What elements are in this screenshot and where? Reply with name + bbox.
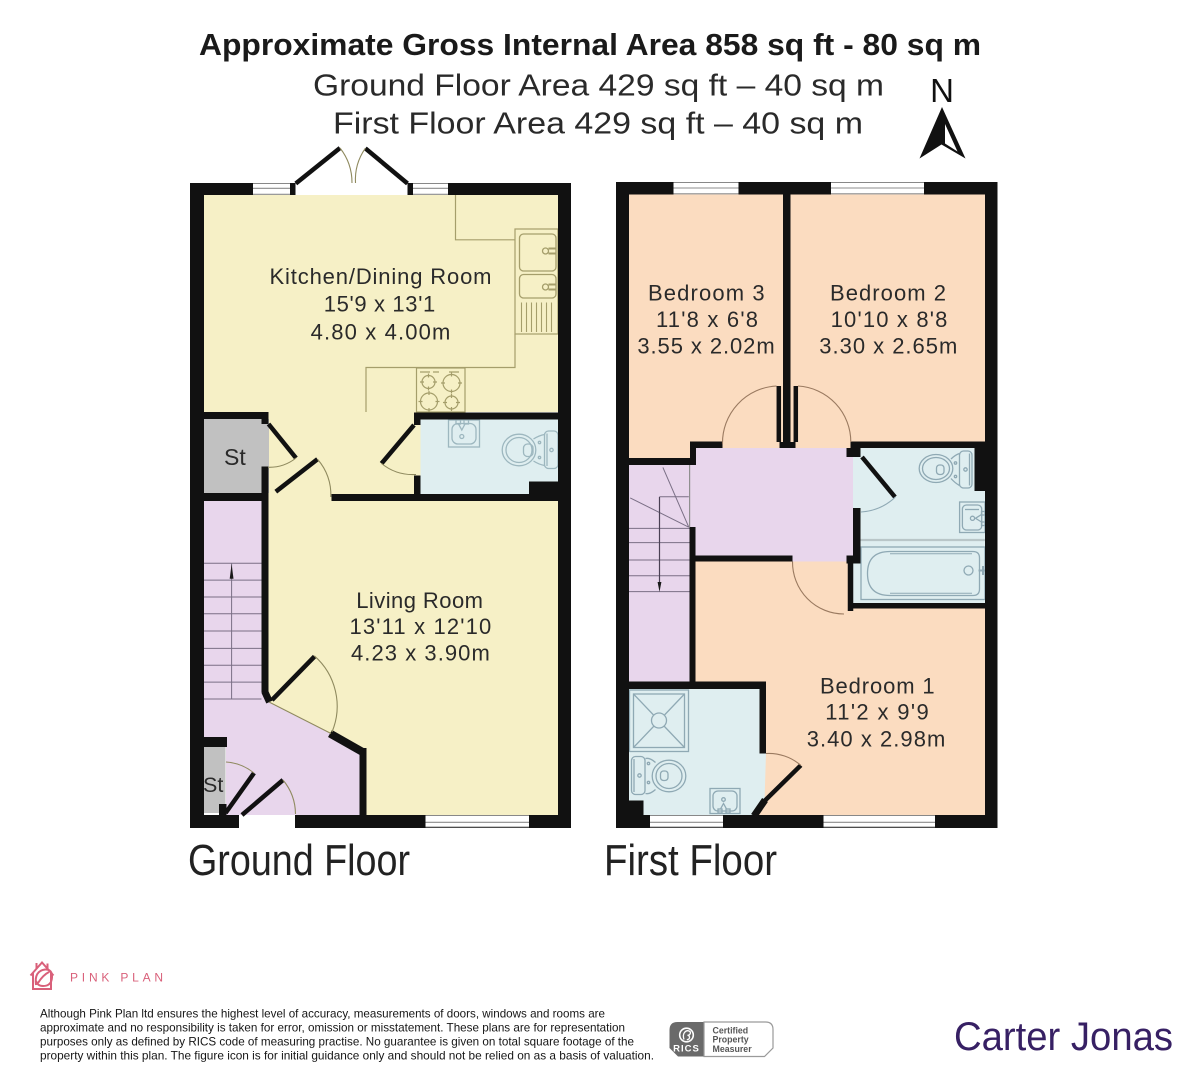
svg-text:Ground Floor: Ground Floor <box>188 836 410 885</box>
svg-text:Although Pink Plan ltd ensures: Although Pink Plan ltd ensures the highe… <box>40 1007 605 1021</box>
svg-text:St: St <box>224 444 246 470</box>
svg-text:15'9 x 13'1: 15'9 x 13'1 <box>324 292 436 317</box>
svg-text:St: St <box>203 773 223 797</box>
svg-text:3.30 x 2.65m: 3.30 x 2.65m <box>819 334 957 359</box>
svg-text:Living Room: Living Room <box>356 588 483 613</box>
svg-text:Ground Floor Area 429 sq ft –: Ground Floor Area 429 sq ft – 40 sq m <box>313 68 884 103</box>
svg-text:11'8 x 6'8: 11'8 x 6'8 <box>656 307 758 332</box>
svg-text:N: N <box>930 72 954 109</box>
svg-text:Carter Jonas: Carter Jonas <box>954 1015 1173 1059</box>
svg-text:RICS: RICS <box>673 1044 700 1055</box>
svg-text:Bedroom 3: Bedroom 3 <box>648 280 765 305</box>
svg-text:11'2 x 9'9: 11'2 x 9'9 <box>825 699 928 724</box>
svg-text:4.23 x 3.90m: 4.23 x 3.90m <box>351 640 490 665</box>
svg-text:Bedroom 2: Bedroom 2 <box>830 280 946 305</box>
svg-text:4.80 x 4.00m: 4.80 x 4.00m <box>311 320 451 345</box>
svg-text:13'11 x 12'10: 13'11 x 12'10 <box>350 614 492 639</box>
svg-text:Kitchen/Dining Room: Kitchen/Dining Room <box>270 264 492 289</box>
svg-text:3.55 x 2.02m: 3.55 x 2.02m <box>637 334 774 359</box>
svg-text:Bedroom 1: Bedroom 1 <box>820 673 935 698</box>
svg-text:First Floor: First Floor <box>604 836 777 885</box>
svg-text:Measurer: Measurer <box>713 1044 753 1054</box>
svg-text:PINK PLAN: PINK PLAN <box>70 971 167 985</box>
svg-text:purposes only as defined by RI: purposes only as defined by RICS code of… <box>40 1035 634 1049</box>
svg-text:property within this plan. The: property within this plan. The figure ic… <box>40 1049 654 1063</box>
svg-text:3.40 x 2.98m: 3.40 x 2.98m <box>807 727 946 752</box>
svg-text:10'10 x 8'8: 10'10 x 8'8 <box>831 307 948 332</box>
svg-text:Approximate Gross Internal Are: Approximate Gross Internal Area 858 sq f… <box>199 27 981 62</box>
svg-text:First Floor Area 429 sq ft – 4: First Floor Area 429 sq ft – 40 sq m <box>333 106 863 141</box>
svg-text:approximate and no responsibil: approximate and no responsibility is tak… <box>40 1021 625 1035</box>
